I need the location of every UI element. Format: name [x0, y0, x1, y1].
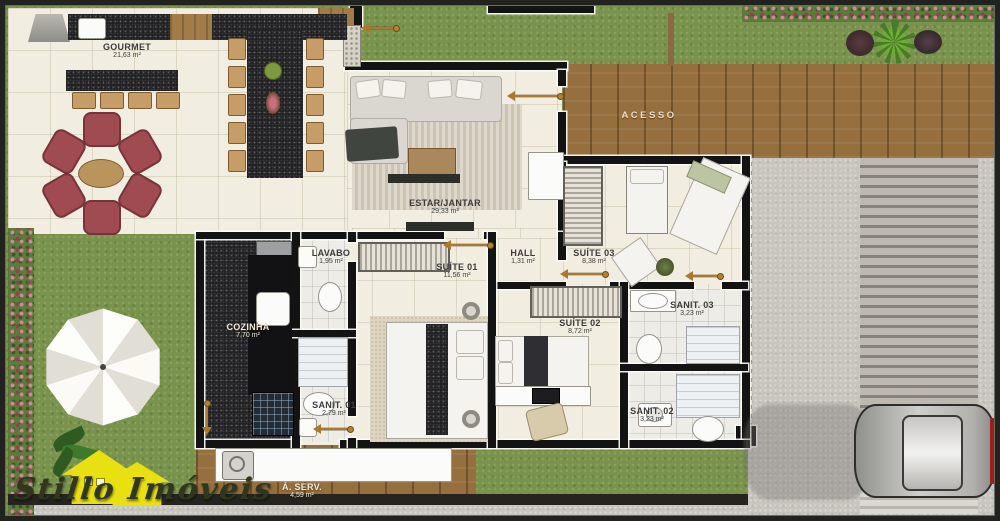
room-label-sanit2: SANIT. 02 3,23 m²	[630, 406, 674, 424]
bar-chair	[72, 92, 96, 109]
suite1-pillow	[456, 356, 484, 380]
sofa-pillow	[381, 79, 407, 99]
wall	[742, 156, 750, 448]
front-wall-segment	[488, 0, 594, 13]
sofa-throw-blanket	[345, 126, 399, 162]
lounge-oval-table	[78, 159, 124, 188]
sideboard	[66, 70, 178, 91]
suite2-wardrobe	[530, 286, 622, 318]
umbrella-pole	[100, 364, 106, 370]
room-label-gourmet: GOURMET 21,63 m²	[103, 42, 151, 60]
door-arrow-suite1	[446, 244, 492, 246]
wall	[722, 282, 748, 289]
table-decor-flowers	[266, 92, 280, 114]
wall	[560, 156, 750, 164]
entry-cabinet	[528, 152, 564, 200]
wall	[196, 440, 300, 448]
watermark-brand-text: Stillo Imóveis	[12, 472, 274, 507]
wall	[196, 232, 204, 448]
stove-grill	[252, 392, 294, 436]
room-label-aserv: Á. SERV. 4,59 m²	[282, 482, 322, 500]
room-label-suite3: SUÍTE 03 8,38 m²	[573, 248, 614, 266]
wall	[348, 232, 356, 242]
door-arrow-gourmet	[364, 27, 398, 29]
garden-bush	[914, 30, 942, 54]
suite1-pillow	[456, 330, 484, 354]
wall	[620, 364, 748, 371]
coffee-table	[408, 148, 456, 176]
dining-chair	[228, 122, 246, 144]
car	[854, 404, 996, 498]
dining-chair	[228, 150, 246, 172]
suite2-bed-runner	[524, 336, 548, 386]
sofa-pillow	[427, 79, 452, 99]
floor-plan: GOURMET 21,63 m² ESTAR/JANTAR 29,33 m² L…	[0, 0, 1000, 521]
lavabo-toilet	[318, 282, 342, 312]
door-arrow-suite2	[563, 273, 607, 275]
room-label-suite2: SUÍTE 02 8,72 m²	[559, 318, 600, 336]
garden-bush	[846, 30, 874, 56]
suite3-pouf	[656, 258, 674, 276]
sofa-pillow	[455, 78, 483, 100]
room-label-hall: HALL 1,31 m²	[510, 248, 535, 266]
washer-drum	[229, 456, 245, 472]
sofa-pillow	[355, 78, 381, 99]
counter-wood-cabinet	[170, 14, 212, 40]
dining-chair	[228, 66, 246, 88]
bar-chair	[100, 92, 124, 109]
wall	[558, 70, 566, 86]
car-roof	[902, 415, 963, 490]
counter-sink	[78, 18, 106, 39]
suite2-pillow	[498, 362, 513, 384]
room-label-lavabo: LAVABO 1,95 m²	[312, 248, 350, 266]
sanit3-shower	[686, 326, 740, 364]
wall	[196, 232, 356, 239]
dining-chair	[228, 38, 246, 60]
dining-chair	[306, 122, 324, 144]
wall	[345, 62, 567, 70]
wall	[348, 438, 356, 448]
sanit2-toilet	[692, 416, 724, 442]
room-label-estar: ESTAR/JANTAR 29,33 m²	[409, 198, 481, 216]
suite3-wardrobe	[563, 166, 603, 246]
bar-chair	[128, 92, 152, 109]
suite3-pillow	[630, 169, 664, 184]
table-decor-plate	[264, 62, 282, 80]
fridge	[256, 292, 290, 326]
wall	[348, 262, 356, 416]
wall	[352, 232, 444, 239]
dining-chair	[306, 150, 324, 172]
ghost-car	[744, 404, 872, 500]
sanit1-shower	[298, 337, 348, 387]
ceiling-light	[462, 302, 480, 320]
sanit3-toilet	[636, 334, 662, 364]
garden-fence-line	[668, 13, 674, 66]
car-taillight	[990, 418, 995, 484]
suite2-pillow	[498, 340, 513, 362]
room-label-sanit1: SANIT. 01 2,79 m²	[312, 400, 356, 418]
flower-bed-top	[742, 4, 996, 22]
acesso-label: ACESSO	[621, 110, 676, 121]
dining-chair	[228, 94, 246, 116]
door-arrow-entry	[510, 95, 562, 97]
lounge-chair	[83, 112, 121, 147]
dining-chair	[306, 94, 324, 116]
room-label-suite1: SUÍTE 01 11,56 m²	[436, 262, 477, 280]
lounge-chair	[83, 200, 121, 235]
room-label-sanit3: SANIT. 03 3,23 m²	[670, 300, 714, 318]
room-label-cozinha: COZINHA 7,70 m²	[226, 322, 269, 340]
door-arrow-kitchen	[206, 402, 208, 432]
ceiling-light	[462, 410, 480, 428]
sanit2-shower	[676, 374, 740, 418]
bar-chair	[156, 92, 180, 109]
door-arrow-sanit1	[316, 428, 352, 430]
dining-chair	[306, 66, 324, 88]
wall	[292, 330, 356, 337]
sanit3-sink	[638, 293, 668, 309]
dining-chair	[306, 38, 324, 60]
palm-plant	[872, 20, 916, 64]
suite1-bed-runner	[426, 324, 448, 435]
suite2-laptop	[532, 388, 560, 404]
door-arrow-sanit3	[688, 275, 722, 277]
tv-bench	[388, 174, 460, 183]
console-table	[406, 222, 474, 231]
